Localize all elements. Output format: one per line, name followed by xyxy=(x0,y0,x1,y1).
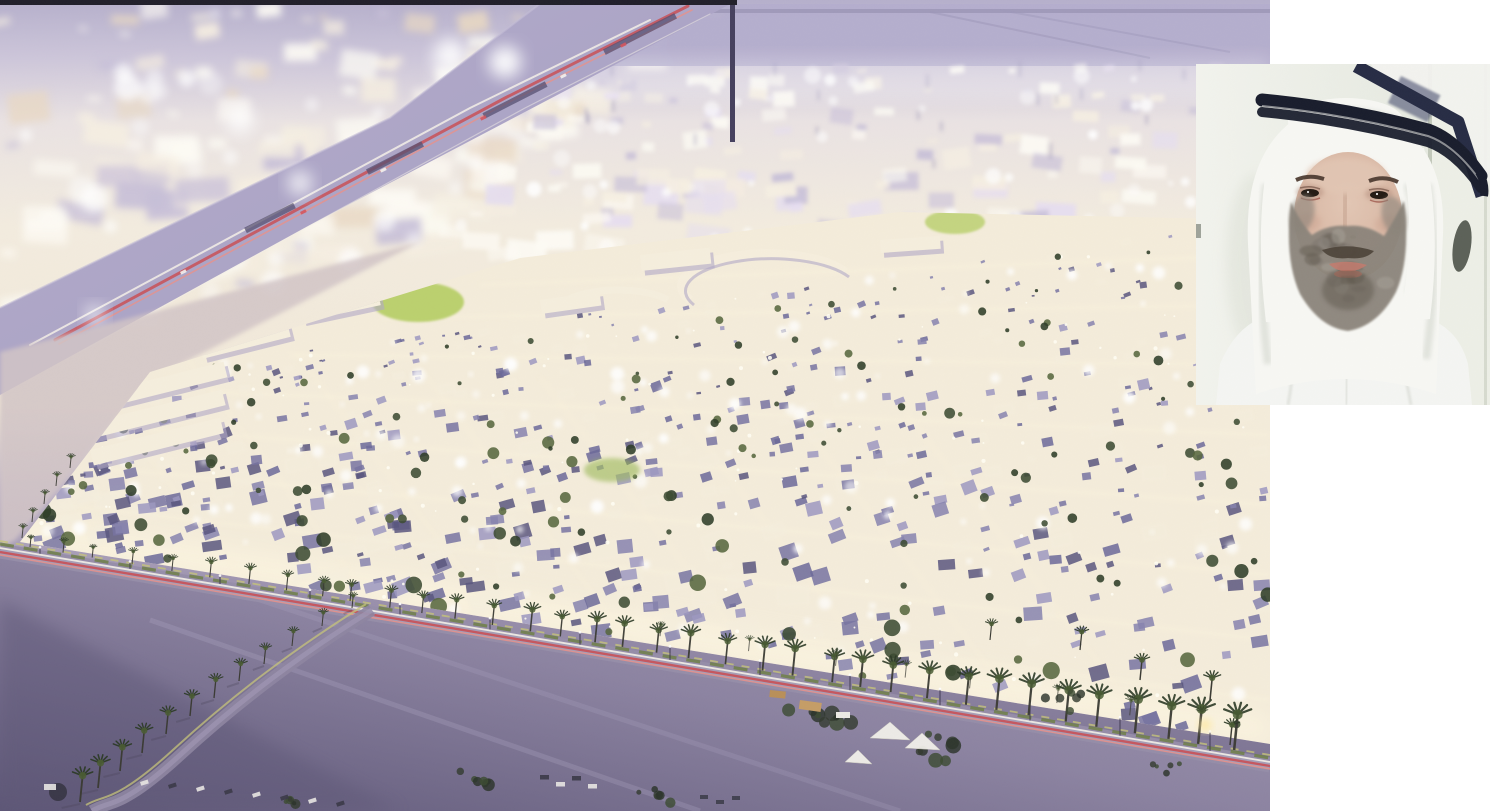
aerial-svg xyxy=(0,0,1270,811)
aerial-city-rendering-photo xyxy=(0,0,1270,811)
newspaper-photo-collage xyxy=(0,0,1500,811)
portrait-svg xyxy=(1196,64,1490,405)
portrait-photo-inset xyxy=(1196,64,1490,405)
